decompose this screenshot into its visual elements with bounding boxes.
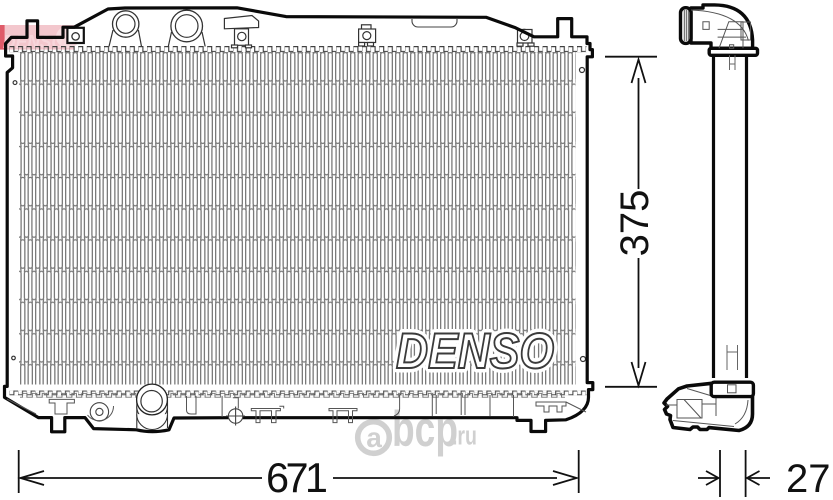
- svg-text:27: 27: [786, 457, 831, 500]
- svg-text:375: 375: [613, 190, 657, 257]
- svg-text:DENSO: DENSO: [396, 323, 554, 379]
- svg-text:671: 671: [266, 454, 328, 500]
- svg-text:bcp: bcp: [392, 401, 458, 457]
- svg-text:.ru: .ru: [452, 421, 477, 451]
- svg-text:a: a: [366, 422, 382, 453]
